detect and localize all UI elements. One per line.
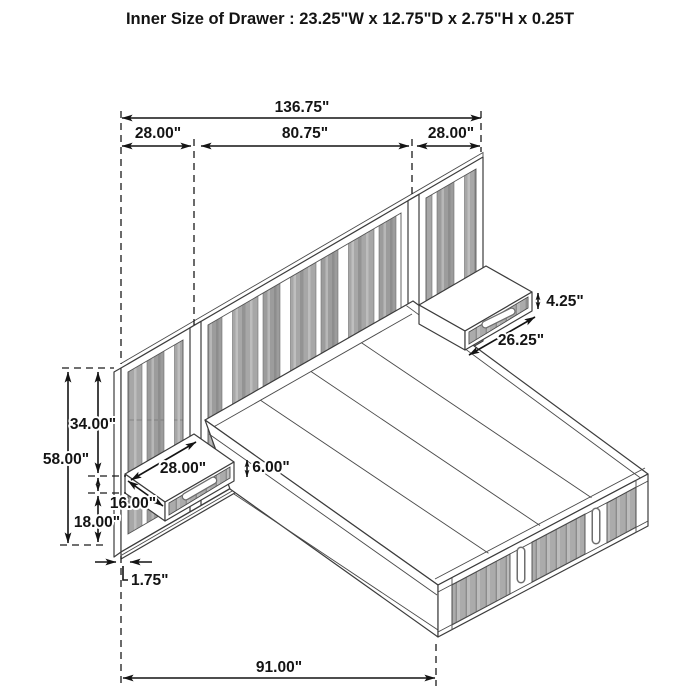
dim-label-total-width: 136.75" [275,99,330,116]
dim-label-lower-height: 18.00" [74,514,120,531]
dimension-diagram-page: Inner Size of Drawer : 23.25"W x 12.75"D… [0,0,700,700]
dim-label-upper-height: 34.00" [70,416,116,433]
dim-label-right-section: 28.00" [428,125,474,142]
dim-label-right-drawer-width: 26.25" [498,332,544,349]
bed-dimension-diagram: Inner Size of Drawer : 23.25"W x 12.75"D… [0,0,700,700]
diagram-title: Inner Size of Drawer : 23.25"W x 12.75"D… [126,10,574,28]
dim-thickness-leader [123,566,128,580]
dim-label-shelf-depth: 16.00" [110,495,156,512]
dim-label-total-height: 58.00" [43,451,89,468]
dim-label-shelf-width: 28.00" [160,460,206,477]
dim-label-shelf-rise: 6.00" [252,459,290,476]
dim-label-right-drawer-height: 4.25" [546,293,584,310]
dim-label-center-section: 80.75" [282,125,328,142]
dim-label-panel-thickness: 1.75" [131,572,169,589]
dim-label-left-section: 28.00" [135,125,181,142]
dim-label-bed-depth: 91.00" [256,659,302,676]
